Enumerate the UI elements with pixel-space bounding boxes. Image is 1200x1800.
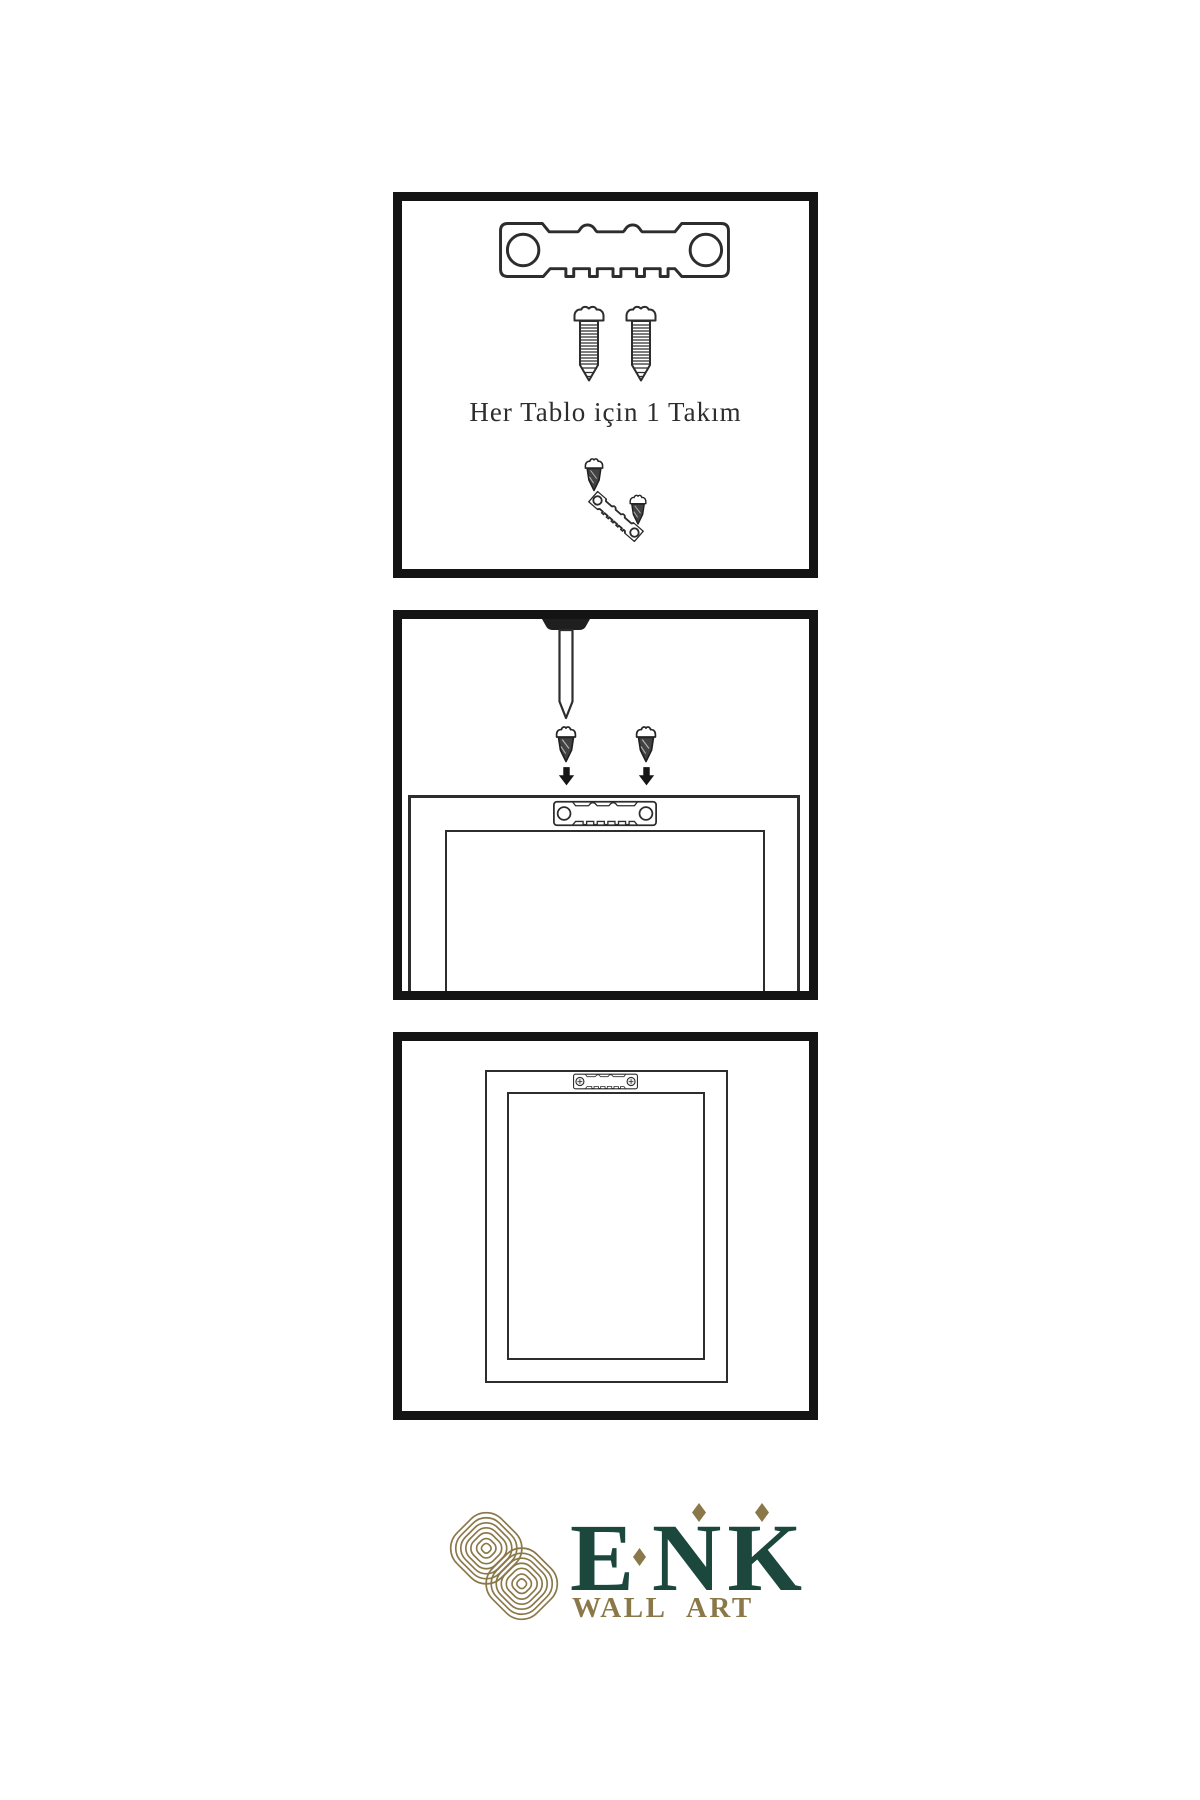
brand-wordmark: E N K <box>570 1510 802 1606</box>
down-arrow-icon <box>558 767 575 786</box>
brand-tagline: WALL ART <box>572 1592 754 1625</box>
frame-inner-outline <box>507 1092 705 1360</box>
dark-screw-icon <box>628 493 648 526</box>
frame-inner-outline <box>445 830 765 991</box>
dark-screw-icon <box>583 457 605 492</box>
step-panel-hanger-mounted <box>393 1032 818 1420</box>
dark-screw-icon <box>554 725 578 763</box>
sawtooth-hanger-plate-icon <box>553 800 657 827</box>
wordmark-letter: N <box>652 1510 721 1606</box>
sawtooth-hanger-mounted-icon <box>573 1073 638 1090</box>
wordmark-letter: K <box>727 1510 802 1606</box>
diamond-icon <box>755 1503 769 1522</box>
step-panel-hardware-kit: Her Tablo için 1 Takım <box>393 192 818 578</box>
wordmark-letter: E <box>570 1510 634 1606</box>
diamond-icon <box>692 1503 706 1522</box>
knot-logo-icon <box>440 1502 568 1630</box>
instruction-sheet: Her Tablo için 1 Takım E N K WAL <box>0 0 1200 1800</box>
dark-screw-icon <box>634 725 658 763</box>
hanger-screw-assembly <box>583 457 655 553</box>
screw-icon <box>571 305 607 385</box>
sawtooth-hanger-icon <box>497 222 732 278</box>
down-arrow-icon <box>638 767 655 786</box>
nail-icon <box>542 619 590 721</box>
diamond-icon <box>633 1548 646 1566</box>
screw-icon <box>623 305 659 385</box>
step-panel-attach-hanger <box>393 610 818 1000</box>
kit-caption: Her Tablo için 1 Takım <box>402 397 809 428</box>
